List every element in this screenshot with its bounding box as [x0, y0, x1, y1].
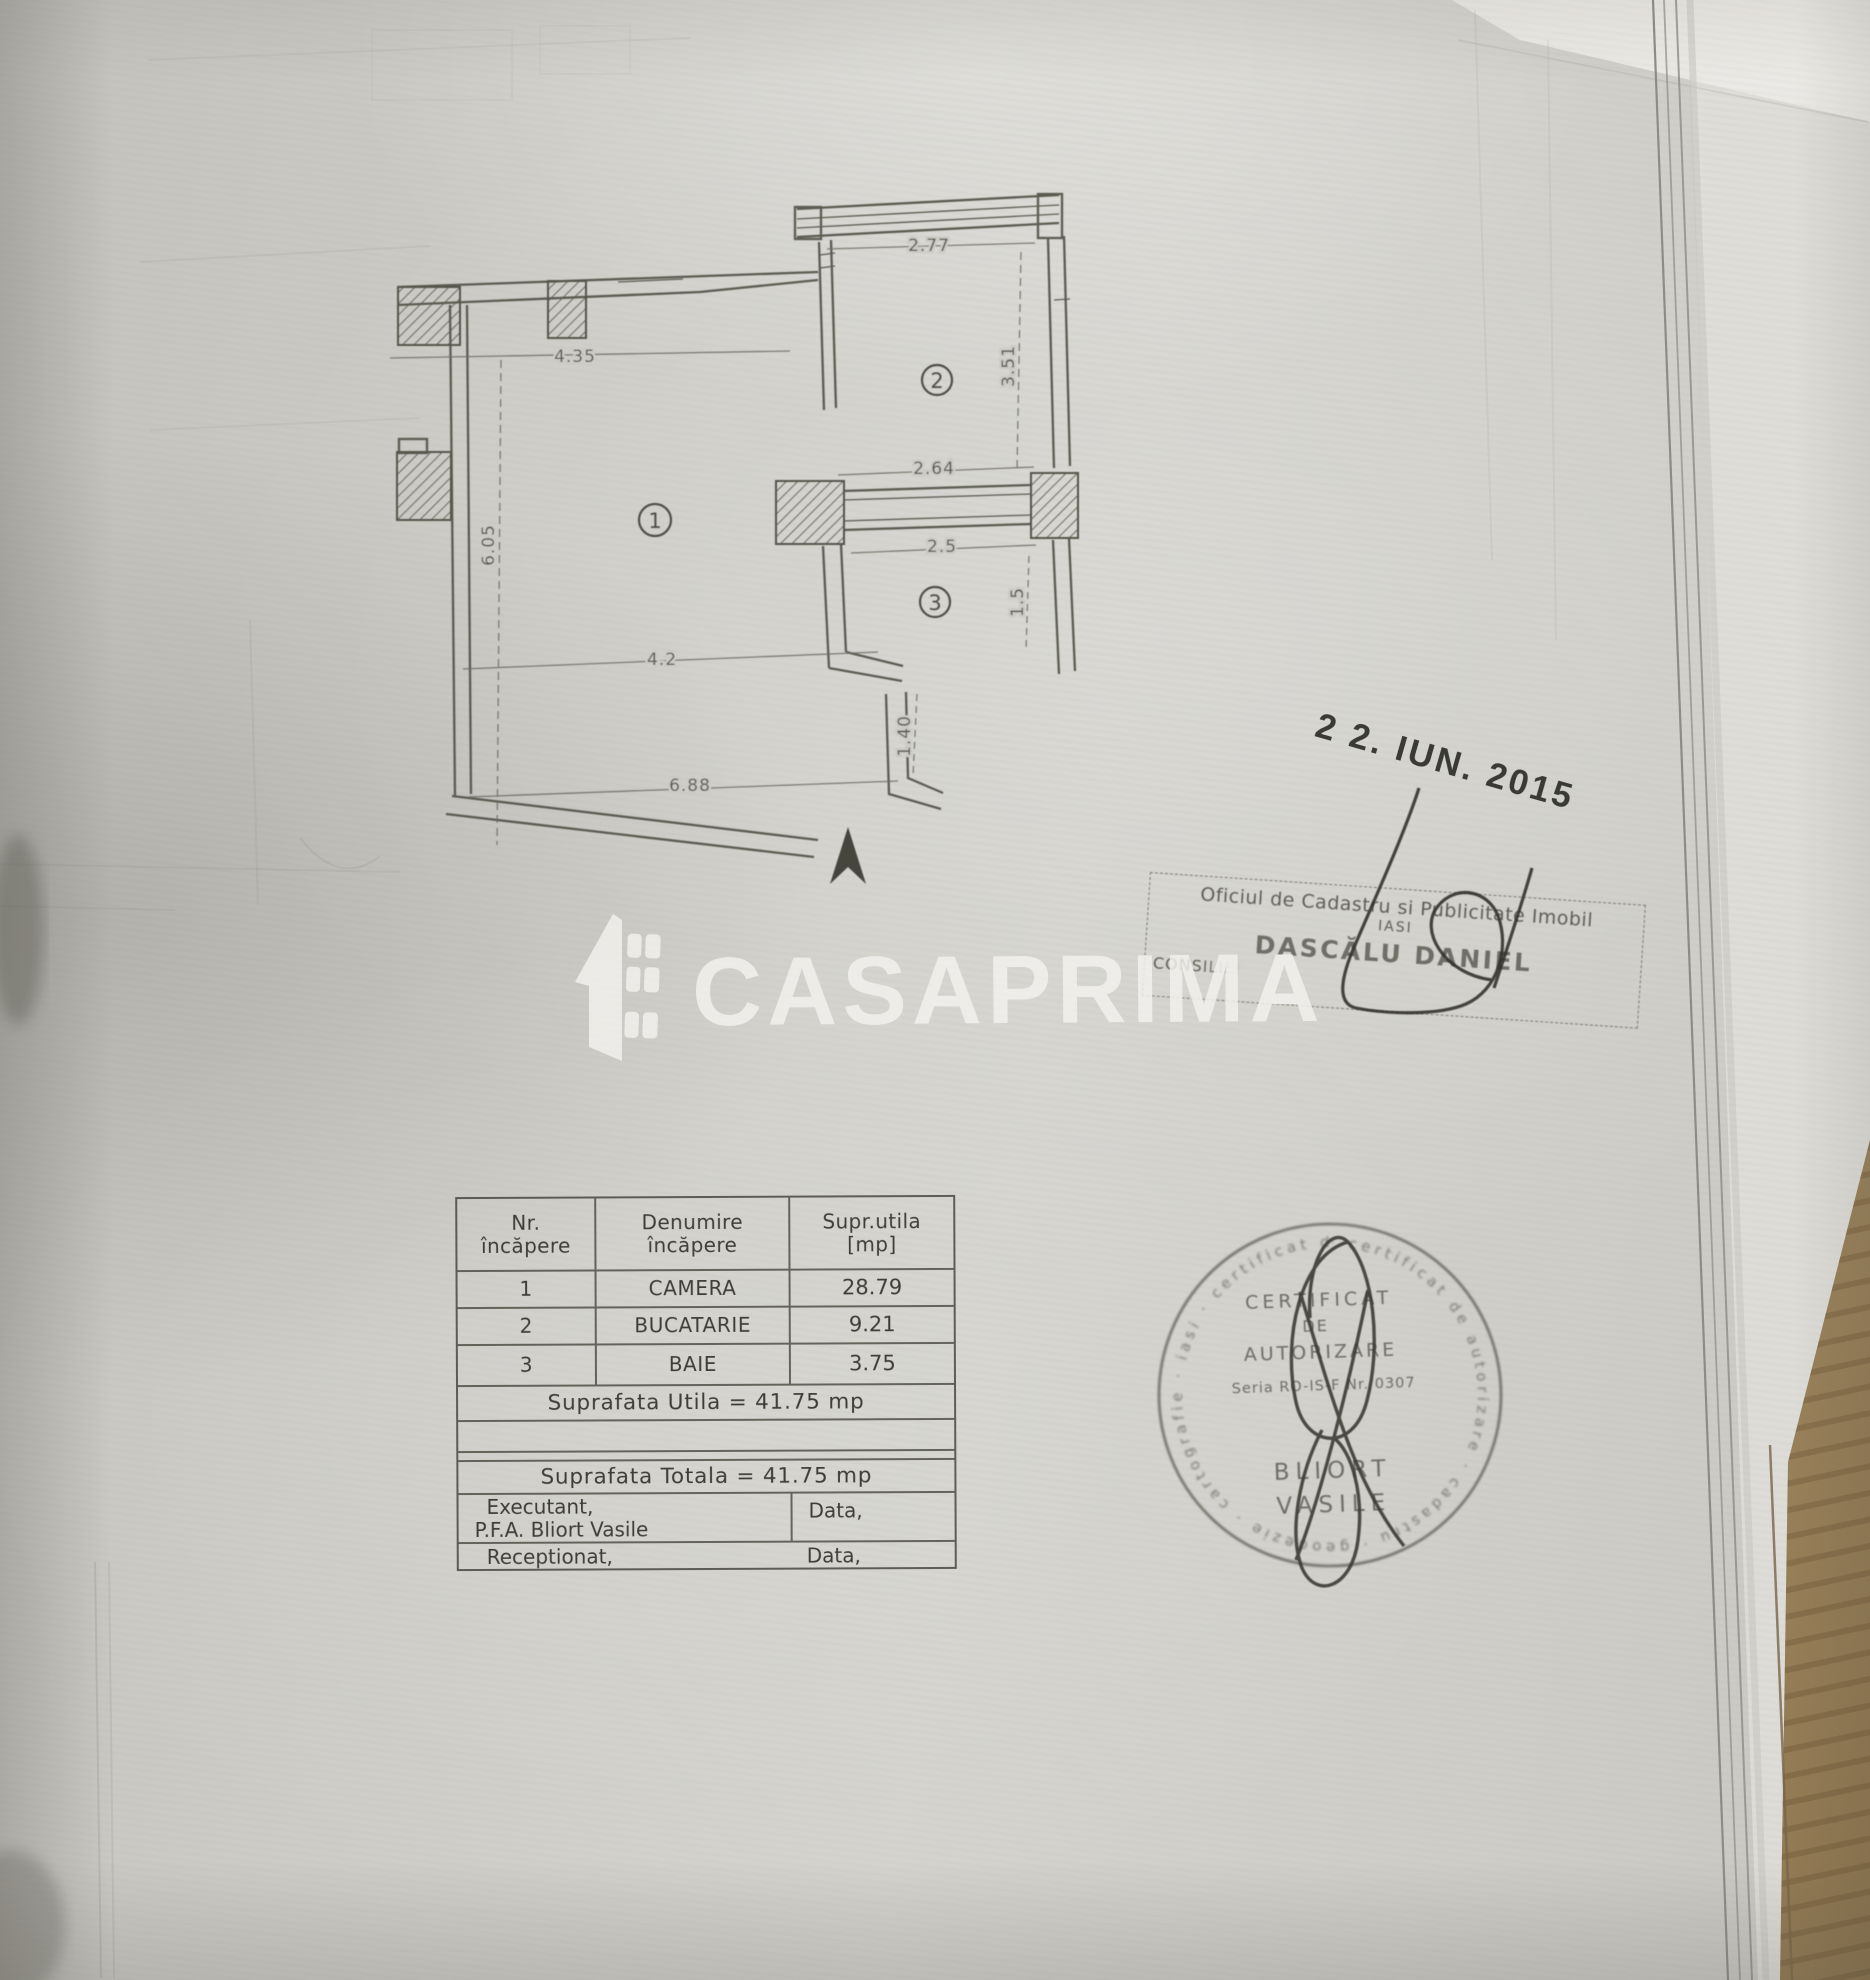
data-cell: Data, [790, 1493, 954, 1541]
header-denumire: Denumire încăpere [594, 1198, 788, 1270]
data-cell-2: Data, [791, 1542, 955, 1570]
executant-row: Executant, P.F.A. Bliort Vasile Data, [458, 1491, 954, 1542]
header-suprafata: Supr.utila [mp] [788, 1197, 953, 1269]
receptionat-row: Receptionat, Data, [459, 1540, 955, 1571]
room-area-table: Nr. încăpere Denumire încăpere Supr.util… [455, 1195, 957, 1571]
receptionat-cell: Receptionat, [459, 1543, 791, 1571]
document-photo: Oficiul de Cadastru si Publicitate Imobi… [0, 0, 1870, 1980]
header-nr: Nr. încăpere [457, 1198, 594, 1270]
watermark-brand: CASAPRIMA [692, 932, 1325, 1048]
empty-row [458, 1418, 954, 1451]
table-row: 2 BUCATARIE 9.21 [458, 1305, 954, 1344]
watermark: CASAPRIMA [574, 912, 1324, 1064]
table-row: 3 BAIE 3.75 [458, 1342, 954, 1385]
table-row: 1 CAMERA 28.79 [458, 1268, 954, 1307]
total-utila-row: Suprafata Utila = 41.75 mp [458, 1383, 954, 1420]
casaprima-logo-icon [574, 912, 666, 1064]
executant-cell: Executant, P.F.A. Bliort Vasile [458, 1494, 790, 1542]
total-totala-row: Suprafata Totala = 41.75 mp [458, 1458, 954, 1493]
table-header-row: Nr. încăpere Denumire încăpere Supr.util… [457, 1197, 953, 1270]
